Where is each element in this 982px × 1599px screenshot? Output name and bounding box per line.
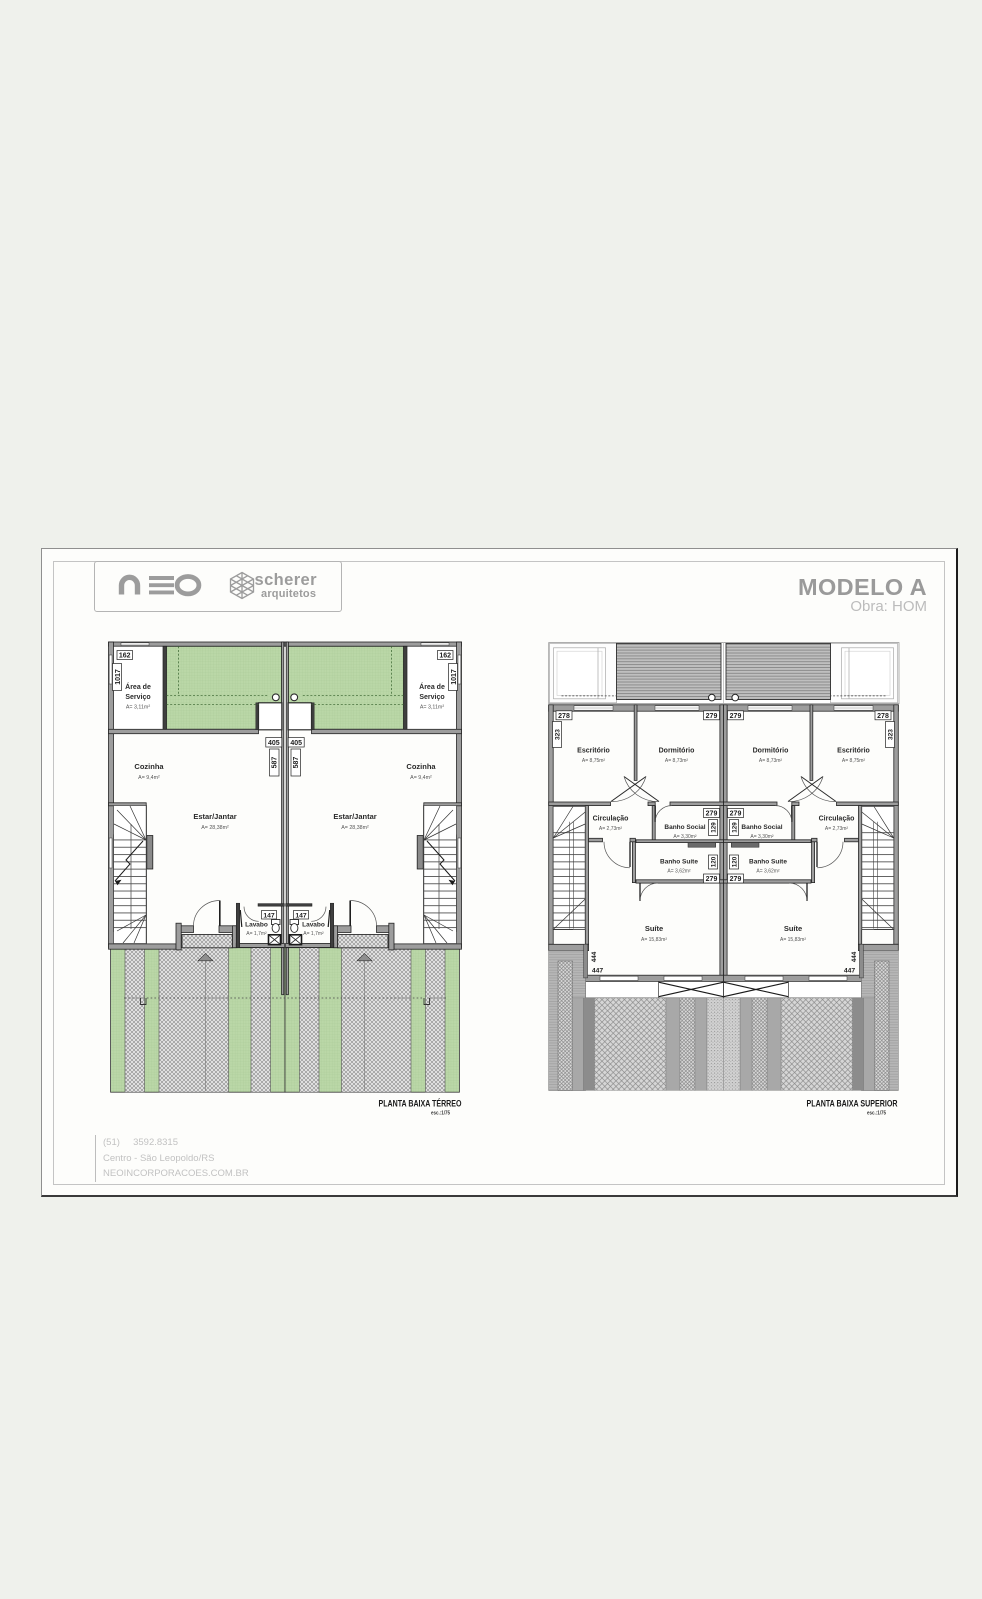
svg-text:444: 444	[591, 951, 598, 962]
svg-text:Dormitório: Dormitório	[753, 748, 789, 755]
svg-text:Estar/Jantar: Estar/Jantar	[333, 812, 376, 821]
svg-text:Escritório: Escritório	[837, 748, 870, 755]
svg-text:A= 15,83m²: A= 15,83m²	[641, 937, 667, 943]
svg-text:esc.:1/75: esc.:1/75	[431, 1111, 450, 1117]
svg-text:Dormitório: Dormitório	[659, 748, 695, 755]
svg-text:Circulação: Circulação	[819, 816, 855, 823]
svg-text:1017: 1017	[451, 669, 458, 685]
svg-text:Suíte: Suíte	[784, 924, 802, 933]
svg-text:Área de: Área de	[125, 682, 151, 691]
svg-text:Circulação: Circulação	[593, 816, 629, 823]
svg-text:A= 28,38m²: A= 28,38m²	[341, 825, 369, 831]
svg-text:Serviço: Serviço	[125, 694, 150, 701]
svg-text:Cozinha: Cozinha	[134, 762, 164, 771]
svg-text:444: 444	[851, 951, 858, 962]
svg-text:arquitetos: arquitetos	[261, 588, 316, 600]
svg-text:1017: 1017	[115, 669, 122, 685]
svg-text:279: 279	[706, 811, 718, 818]
svg-text:Serviço: Serviço	[419, 694, 444, 701]
svg-text:447: 447	[592, 968, 604, 975]
svg-text:A= 8,73m²: A= 8,73m²	[665, 758, 689, 764]
svg-text:A= 1,7m²: A= 1,7m²	[246, 931, 267, 937]
svg-text:Banho Social: Banho Social	[741, 824, 782, 831]
svg-text:A= 28,38m²: A= 28,38m²	[201, 825, 229, 831]
svg-text:A= 1,7m²: A= 1,7m²	[303, 931, 324, 937]
svg-text:A= 8,75m²: A= 8,75m²	[842, 758, 866, 764]
svg-text:405: 405	[268, 740, 280, 747]
svg-text:162: 162	[119, 653, 131, 660]
svg-text:Área de: Área de	[419, 682, 445, 691]
svg-text:129: 129	[732, 822, 739, 833]
svg-text:Banho Social: Banho Social	[664, 824, 705, 831]
svg-text:PLANTA BAIXA TÉRREO: PLANTA BAIXA TÉRREO	[379, 1099, 462, 1110]
svg-text:323: 323	[555, 729, 562, 740]
svg-text:162: 162	[439, 653, 451, 660]
svg-text:587: 587	[293, 757, 300, 769]
svg-text:147: 147	[295, 912, 307, 919]
svg-text:279: 279	[706, 713, 718, 720]
svg-text:147: 147	[263, 912, 275, 919]
svg-text:A= 2,73m²: A= 2,73m²	[825, 826, 849, 832]
svg-text:A= 3,62m²: A= 3,62m²	[756, 869, 780, 875]
svg-text:Banho Suíte: Banho Suíte	[749, 859, 787, 866]
svg-text:587: 587	[272, 757, 279, 769]
svg-text:A= 9,4m²: A= 9,4m²	[138, 775, 160, 781]
svg-text:A= 8,73m²: A= 8,73m²	[759, 758, 783, 764]
svg-text:A= 9,4m²: A= 9,4m²	[410, 775, 432, 781]
svg-text:278: 278	[877, 713, 889, 720]
svg-text:278: 278	[558, 713, 570, 720]
svg-text:279: 279	[730, 713, 742, 720]
svg-text:279: 279	[730, 811, 742, 818]
svg-text:A= 3,62m²: A= 3,62m²	[667, 869, 691, 875]
svg-text:Lavabo: Lavabo	[302, 922, 325, 929]
svg-text:A= 8,75m²: A= 8,75m²	[582, 758, 606, 764]
svg-text:A= 2,73m²: A= 2,73m²	[599, 826, 623, 832]
svg-text:A= 3,30m²: A= 3,30m²	[750, 834, 774, 840]
svg-text:A= 3,30m²: A= 3,30m²	[673, 834, 697, 840]
svg-text:Suíte: Suíte	[645, 924, 663, 933]
svg-text:120: 120	[732, 856, 739, 867]
svg-text:405: 405	[290, 740, 302, 747]
svg-text:120: 120	[711, 856, 718, 867]
svg-text:129: 129	[711, 822, 718, 833]
svg-text:A= 3,11m²: A= 3,11m²	[126, 705, 150, 711]
svg-text:A= 3,11m²: A= 3,11m²	[420, 705, 444, 711]
svg-text:A= 15,83m²: A= 15,83m²	[780, 937, 806, 943]
svg-text:Estar/Jantar: Estar/Jantar	[193, 812, 236, 821]
svg-text:Cozinha: Cozinha	[406, 762, 436, 771]
svg-text:279: 279	[706, 876, 718, 883]
svg-text:PLANTA BAIXA SUPERIOR: PLANTA BAIXA SUPERIOR	[807, 1099, 898, 1110]
svg-text:scherer: scherer	[255, 571, 318, 589]
svg-text:Escritório: Escritório	[577, 748, 610, 755]
svg-text:Lavabo: Lavabo	[245, 922, 268, 929]
svg-text:279: 279	[730, 876, 742, 883]
svg-text:esc.:1/75: esc.:1/75	[867, 1111, 886, 1117]
svg-text:323: 323	[888, 729, 895, 740]
svg-text:Banho Suíte: Banho Suíte	[660, 859, 698, 866]
svg-text:447: 447	[844, 968, 856, 975]
